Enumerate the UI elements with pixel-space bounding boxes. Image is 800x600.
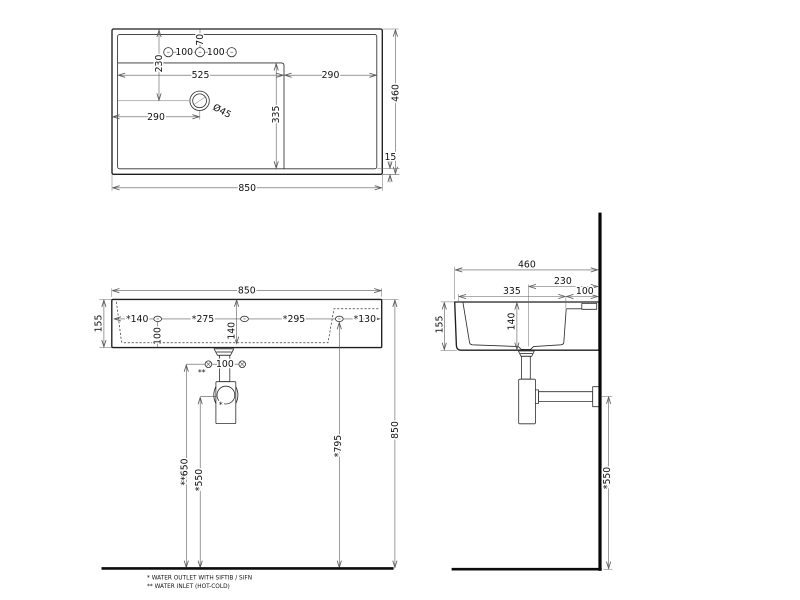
dim-front-inner-depth-label: 140	[226, 322, 237, 340]
dim-rim-height-label: 850	[390, 421, 401, 439]
dim-bowl-length-label: 335	[271, 106, 282, 124]
dim-hole-span2-label: *295	[283, 314, 305, 325]
technical-drawing-canvas: 850 460 15 70 100 100 230 525 290 290 Ø4…	[0, 0, 800, 600]
drawing-page: 850 460 15 70 100 100 230 525 290 290 Ø4…	[0, 0, 800, 600]
pipe-collar	[535, 390, 538, 404]
drain-tailpipe	[522, 356, 531, 379]
outlet-ref-mark: *	[219, 401, 223, 410]
dim-drain-from-rear-label: 230	[154, 55, 165, 73]
dim-rim-label: 15	[384, 152, 396, 163]
dim-inlet-height-label: **650	[180, 458, 191, 485]
dim-hole-span1-label: *275	[192, 314, 214, 325]
dim-outlet-height-label: *550	[602, 467, 613, 489]
dim-hole-to-bottom-label: 100	[153, 327, 164, 345]
dim-inlet-spacing-label: 100	[216, 359, 234, 370]
dim-bowl-depth-label: 335	[503, 286, 521, 297]
footnotes: * WATER OUTLET WITH SIFTIB / SIFN ** WAT…	[147, 576, 252, 591]
dim-hole-left-label: *140	[126, 314, 148, 325]
dim-side-depth-label: 460	[518, 259, 536, 270]
dim-side-height-label: 155	[435, 316, 446, 334]
dim-rear-deck-label: 100	[576, 286, 594, 297]
dim-front-width-label: 850	[238, 286, 256, 297]
dim-holes-height-label: *795	[333, 435, 344, 457]
drain-assembly-side	[518, 351, 599, 424]
water-inlet-right	[239, 361, 246, 368]
dim-hole-right-label: *130	[354, 314, 376, 325]
side-view: 460 230 335 100 155 140 *550	[435, 213, 613, 571]
dim-depth-label: 460	[390, 84, 401, 102]
siphon-bottle	[519, 379, 536, 424]
front-view: 850 155 *140 *275 *295 *130 100 140 100 …	[94, 286, 401, 569]
dim-siphon-height-label: *550	[194, 469, 205, 491]
dim-right-deck-label: 290	[322, 70, 340, 81]
waste-pipe-horizontal	[539, 392, 593, 402]
note-water-outlet: * WATER OUTLET WITH SIFTIB / SIFN	[147, 576, 252, 582]
dim-bowl-width-label: 525	[192, 70, 210, 81]
basin-outer-rim	[112, 29, 382, 174]
wall-flange	[593, 387, 599, 407]
dim-tap-spacing-left-label: 100	[175, 47, 193, 58]
note-water-inlet: ** WATER INLET (HOT-COLD)	[147, 584, 230, 590]
water-inlet-left	[205, 361, 212, 368]
mounting-bracket	[582, 303, 597, 309]
dim-width-label: 850	[238, 183, 256, 194]
basin-side-outline	[455, 302, 599, 350]
dim-drain-from-left-label: 290	[147, 112, 165, 123]
dim-side-inner-depth-label: 140	[506, 313, 517, 331]
drain-hole-plan	[190, 91, 209, 110]
dim-drain-from-wall-label: 230	[554, 276, 572, 287]
top-view: 850 460 15 70 100 100 230 525 290 290 Ø4…	[112, 29, 401, 194]
inlet-ref-mark: **	[198, 368, 206, 377]
dim-front-height-label: 155	[94, 315, 105, 333]
dim-tap-spacing-right-label: 100	[207, 47, 225, 58]
dim-tap-offset-label: 70	[195, 34, 206, 46]
